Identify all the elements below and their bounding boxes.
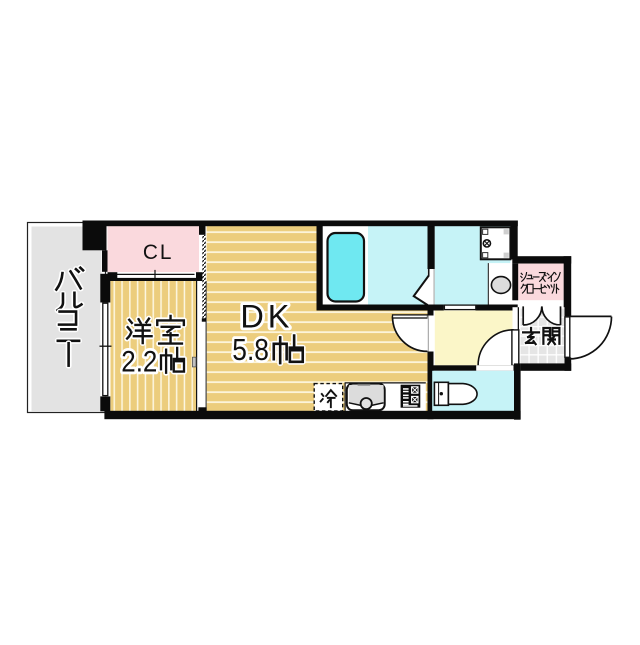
svg-text:CL: CL [143, 241, 174, 264]
svg-text:DK: DK [240, 299, 293, 335]
svg-text:2.2: 2.2 [121, 345, 157, 378]
svg-text:5.8: 5.8 [232, 333, 269, 367]
